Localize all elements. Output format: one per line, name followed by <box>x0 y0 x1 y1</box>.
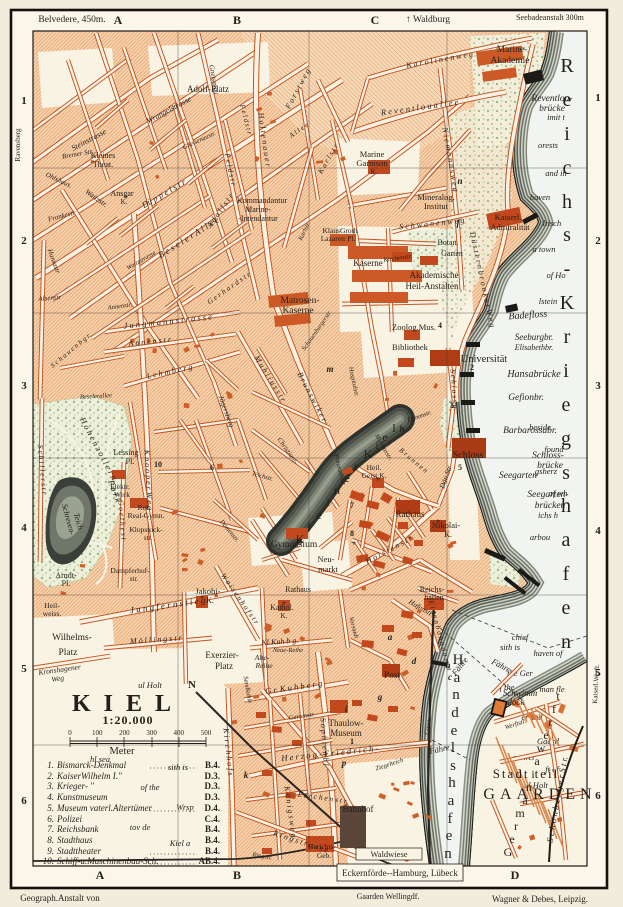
svg-text:Seegarten: Seegarten <box>499 471 537 481</box>
svg-text:Wilhelms-: Wilhelms- <box>52 633 92 643</box>
svg-text:c: c <box>448 672 452 682</box>
svg-text:sith is: sith is <box>168 762 189 772</box>
svg-text:Universität: Universität <box>461 354 508 365</box>
svg-text:man fle: man fle <box>539 684 564 694</box>
svg-text:7.: 7. <box>47 824 54 834</box>
svg-text:Kunstmuseum: Kunstmuseum <box>56 792 108 802</box>
svg-text:7: 7 <box>350 501 354 510</box>
svg-text:-: - <box>564 258 571 280</box>
svg-text:+: + <box>376 475 381 484</box>
svg-text:Gymnasium: Gymnasium <box>271 540 318 550</box>
svg-text:K.: K. <box>280 611 287 620</box>
svg-text:+: + <box>352 539 357 548</box>
svg-text:Pl.: Pl. <box>126 457 135 466</box>
svg-text:arbou: arbou <box>530 532 550 542</box>
svg-text:Institut: Institut <box>424 201 449 211</box>
svg-text:D.4.: D.4. <box>205 803 221 813</box>
svg-text:10.: 10. <box>43 856 54 866</box>
svg-text:Seeburgbr.: Seeburgbr. <box>515 332 553 342</box>
svg-text:B.4.: B.4. <box>205 824 220 834</box>
svg-text:r: r <box>354 459 358 473</box>
svg-text:str.: str. <box>144 534 153 542</box>
svg-text:Stadt teil: Stadt teil <box>493 766 560 781</box>
svg-text:200: 200 <box>119 729 130 737</box>
svg-text:Platz: Platz <box>215 661 233 671</box>
svg-text:-Intendantur: -Intendantur <box>238 214 278 223</box>
svg-text:G: G <box>504 845 513 859</box>
svg-text:d: d <box>451 705 459 721</box>
svg-text:e: e <box>451 723 458 739</box>
svg-text:1: 1 <box>21 95 27 107</box>
svg-text:AB.4.: AB.4. <box>198 856 220 866</box>
svg-text:r: r <box>548 715 552 729</box>
svg-text:i: i <box>563 360 569 382</box>
svg-text:Rathaus: Rathaus <box>396 509 425 519</box>
svg-text:f: f <box>552 702 556 716</box>
svg-text:Geograph.Anstalt von: Geograph.Anstalt von <box>20 893 100 903</box>
svg-text:n: n <box>444 846 452 862</box>
svg-text:3: 3 <box>595 380 601 392</box>
svg-text:K.: K. <box>444 530 452 539</box>
svg-text:Barbarossabr.: Barbarossabr. <box>503 426 557 436</box>
svg-text:Heil-Anstalten: Heil-Anstalten <box>406 281 459 291</box>
svg-text:6: 6 <box>595 790 601 802</box>
svg-text:R: R <box>560 55 574 77</box>
svg-text:haven of: haven of <box>533 648 564 658</box>
svg-text:+: + <box>282 599 287 608</box>
svg-text:p: p <box>341 758 347 768</box>
svg-text:B: B <box>233 13 241 27</box>
svg-text:Lessing: Lessing <box>114 448 139 457</box>
svg-text:Wrsp: Wrsp <box>176 802 193 812</box>
svg-text:markt: markt <box>318 564 338 574</box>
svg-text:4: 4 <box>438 321 442 330</box>
svg-text:w: w <box>537 741 546 755</box>
svg-text:100: 100 <box>92 729 103 737</box>
svg-text:3: 3 <box>21 380 27 392</box>
svg-text:Klopstock-: Klopstock- <box>129 525 163 534</box>
svg-text:Bibliothek: Bibliothek <box>392 342 429 352</box>
svg-text:Reihe: Reihe <box>254 661 273 670</box>
svg-text:of the: of the <box>140 782 159 792</box>
svg-text:4: 4 <box>21 522 27 534</box>
svg-text:e: e <box>446 828 453 844</box>
svg-text:Polizei: Polizei <box>56 814 82 824</box>
svg-text:C.4.: C.4. <box>205 814 221 824</box>
svg-text:orests: orests <box>538 140 559 150</box>
svg-text:f: f <box>563 563 570 585</box>
svg-text:n: n <box>561 631 571 653</box>
svg-text:Kaserne: Kaserne <box>282 306 313 316</box>
svg-text:sith is: sith is <box>500 642 521 652</box>
svg-text:Seegarten-: Seegarten- <box>527 490 568 500</box>
svg-text:Hansabrücke: Hansabrücke <box>506 369 561 380</box>
svg-text:Real-Gymn.: Real-Gymn. <box>128 511 165 520</box>
svg-text:e: e <box>562 394 571 416</box>
svg-text:D.3.: D.3. <box>205 792 221 802</box>
svg-text:Kleines: Kleines <box>91 151 115 160</box>
svg-text:tov de: tov de <box>130 822 151 832</box>
svg-text:Lazarett Pl.: Lazarett Pl. <box>321 234 356 243</box>
svg-text:e: e <box>509 832 514 846</box>
svg-text:Bahnhof: Bahnhof <box>343 804 374 814</box>
svg-text:a: a <box>448 793 455 809</box>
svg-text:e: e <box>562 597 571 619</box>
svg-text:Museum: Museum <box>330 728 362 738</box>
svg-text:300: 300 <box>146 729 157 737</box>
svg-text:Rathaus: Rathaus <box>285 585 311 594</box>
svg-text:g: g <box>561 428 571 450</box>
svg-text:Stadttheater: Stadttheater <box>57 846 101 856</box>
svg-text:a town: a town <box>533 244 556 254</box>
svg-text:Meter: Meter <box>109 746 135 757</box>
svg-text:m: m <box>326 364 333 374</box>
svg-text:e: e <box>543 728 548 742</box>
svg-text:h: h <box>448 775 456 791</box>
svg-text:d: d <box>412 656 417 666</box>
svg-text:B.4.: B.4. <box>205 846 220 856</box>
svg-text:0: 0 <box>68 729 72 737</box>
svg-text:s: s <box>450 758 456 774</box>
svg-text:c: c <box>563 157 572 179</box>
svg-text:f: f <box>448 811 453 827</box>
svg-text:6: 6 <box>210 463 214 472</box>
svg-text:5.: 5. <box>47 803 54 813</box>
svg-text:Akademie: Akademie <box>490 56 529 66</box>
svg-text:2.: 2. <box>47 771 54 781</box>
svg-text:n: n <box>452 687 460 703</box>
svg-text:Zoolog.Mus.: Zoolog.Mus. <box>392 322 436 332</box>
svg-text:Museum vaterl.Altertümer: Museum vaterl.Altertümer <box>56 803 152 813</box>
svg-text:m: m <box>515 806 525 820</box>
svg-text:Belvedere, 450m.: Belvedere, 450m. <box>38 15 105 25</box>
svg-text:Seebadeanstalt 300m: Seebadeanstalt 300m <box>516 13 585 22</box>
svg-text:1:20.000: 1:20.000 <box>103 713 154 727</box>
svg-text:h: h <box>562 191 572 213</box>
svg-text:Ravensberg: Ravensberg <box>14 128 22 161</box>
svg-text:a: a <box>388 632 393 642</box>
svg-text:+: + <box>436 517 441 526</box>
svg-text:Schloss: Schloss <box>453 450 484 461</box>
svg-text:2: 2 <box>595 235 601 247</box>
svg-text:C: C <box>371 13 380 27</box>
svg-text:Schiff-u.Maschinenbau-Sch.: Schiff-u.Maschinenbau-Sch. <box>57 856 158 866</box>
svg-text:9.: 9. <box>47 846 54 856</box>
svg-text:+: + <box>124 193 129 202</box>
svg-text:10: 10 <box>154 460 162 469</box>
svg-text:s: s <box>563 224 571 246</box>
svg-text:Botan.: Botan. <box>437 238 458 247</box>
svg-text:r: r <box>514 819 518 833</box>
svg-text:brücke: brücke <box>539 104 565 114</box>
svg-text:Schloss-: Schloss- <box>532 451 564 461</box>
svg-text:Garten: Garten <box>441 249 463 258</box>
svg-text:Pl.: Pl. <box>62 579 71 588</box>
svg-text:g: g <box>377 692 383 702</box>
svg-text:Weg: Weg <box>51 673 65 684</box>
svg-text:Geist K.: Geist K. <box>362 471 387 480</box>
svg-text:brücken: brücken <box>535 501 566 511</box>
svg-text:r: r <box>564 326 571 348</box>
svg-text:GAARDEN: GAARDEN <box>483 786 596 803</box>
svg-text:str.: str. <box>130 575 139 583</box>
svg-text:Neue-Reihe: Neue-Reihe <box>272 647 303 654</box>
svg-text:e: e <box>432 608 436 618</box>
svg-text:Kaiserl.: Kaiserl. <box>495 212 522 222</box>
svg-text:Gerichts-: Gerichts- <box>308 842 336 851</box>
svg-text:9: 9 <box>298 538 302 547</box>
svg-text:Waldwiese: Waldwiese <box>370 849 407 859</box>
svg-text:Gefionbr.: Gefionbr. <box>508 392 544 403</box>
svg-text:1: 1 <box>595 92 601 104</box>
svg-text:n: n <box>334 483 340 497</box>
svg-text:weiss.: weiss. <box>43 609 62 618</box>
svg-text:KaiserWilhelm I.": KaiserWilhelm I." <box>56 771 122 781</box>
svg-text:1.: 1. <box>47 760 54 770</box>
svg-text:1: 1 <box>350 737 354 746</box>
svg-text:Bismarck-Denkmal: Bismarck-Denkmal <box>57 760 127 770</box>
svg-text:Post: Post <box>384 671 401 681</box>
svg-text:Geb.: Geb. <box>317 851 331 860</box>
svg-text:Ansgar: Ansgar <box>110 189 133 198</box>
svg-text:A: A <box>96 868 105 882</box>
svg-text:b: b <box>446 660 451 670</box>
svg-text:ul Holt: ul Holt <box>138 680 162 690</box>
svg-text:4.: 4. <box>47 792 54 802</box>
svg-text:Krieger- ": Krieger- " <box>56 781 94 791</box>
svg-text:K.: K. <box>206 596 214 605</box>
svg-text:Adolf-Platz: Adolf-Platz <box>187 84 229 94</box>
svg-text:+: + <box>200 593 205 602</box>
svg-text:B.4.: B.4. <box>205 760 220 770</box>
svg-text:brücke: brücke <box>537 461 563 471</box>
svg-text:A: A <box>114 13 123 27</box>
svg-text:Akademische: Akademische <box>410 270 459 280</box>
svg-text:Gaarden Wellingdf.: Gaarden Wellingdf. <box>357 892 420 901</box>
svg-text:D.3.: D.3. <box>205 781 221 791</box>
svg-text:Elisabethbr.: Elisabethbr. <box>514 343 553 352</box>
svg-text:ichs h: ichs h <box>538 510 558 520</box>
svg-text:K: K <box>364 447 373 461</box>
svg-text:6.: 6. <box>47 814 54 824</box>
svg-text:2: 2 <box>21 235 27 247</box>
svg-text:l: l <box>451 740 455 756</box>
svg-text:Kommandantur: Kommandantur <box>237 196 288 205</box>
svg-text:lstein: lstein <box>539 296 557 306</box>
svg-text:8.: 8. <box>47 835 54 845</box>
svg-text:Dampferhof-: Dampferhof- <box>110 566 150 575</box>
svg-text:k: k <box>244 770 249 780</box>
svg-text:B: B <box>233 868 241 882</box>
svg-text:n: n <box>457 176 462 186</box>
svg-text:Reichsbank: Reichsbank <box>56 824 99 834</box>
svg-text:ltisch: ltisch <box>543 218 561 228</box>
svg-text:Theat.: Theat. <box>93 160 113 169</box>
svg-text:a: a <box>562 529 571 551</box>
svg-text:B.4.: B.4. <box>205 835 220 845</box>
svg-text:i: i <box>564 123 570 145</box>
svg-text:6: 6 <box>21 795 27 807</box>
svg-text:e: e <box>316 508 321 522</box>
svg-text:3: 3 <box>450 401 454 410</box>
svg-text:Matrosen-: Matrosen- <box>280 296 319 306</box>
svg-text:Garnison: Garnison <box>356 158 388 168</box>
svg-text:Kiel a: Kiel a <box>169 838 191 848</box>
svg-text:K: K <box>560 292 575 314</box>
svg-text:Thaulow-: Thaulow- <box>329 718 364 728</box>
svg-text:Admiralität: Admiralität <box>490 222 530 232</box>
svg-text:Stadthaus: Stadthaus <box>57 835 93 845</box>
svg-text:D.3.: D.3. <box>205 771 221 781</box>
svg-text:h: h <box>399 424 404 434</box>
svg-text:3.: 3. <box>46 781 54 791</box>
svg-text:↑ Waldburg: ↑ Waldburg <box>406 15 450 25</box>
svg-text:Kaserne: Kaserne <box>353 258 382 268</box>
svg-text:500: 500 <box>201 729 212 737</box>
svg-text:Marine-: Marine- <box>245 205 271 214</box>
svg-text:Reventlou-: Reventlou- <box>530 94 572 104</box>
svg-text:5: 5 <box>458 463 462 472</box>
svg-text:2: 2 <box>470 363 474 372</box>
svg-text:400: 400 <box>174 729 185 737</box>
svg-text:s: s <box>562 462 570 484</box>
svg-text:4: 4 <box>595 525 601 537</box>
svg-text:Exerzier-: Exerzier- <box>205 650 238 660</box>
svg-text:5: 5 <box>21 663 27 675</box>
svg-text:Marine-: Marine- <box>497 45 528 55</box>
svg-text:D: D <box>511 868 520 882</box>
svg-text:haven: haven <box>530 192 550 202</box>
svg-text:Platz: Platz <box>59 648 78 658</box>
svg-text:N: N <box>188 679 196 691</box>
svg-text:8: 8 <box>350 529 354 538</box>
svg-text:Neu-: Neu- <box>318 554 335 564</box>
svg-text:Eckernförde--Hamburg, Lübeck: Eckernförde--Hamburg, Lübeck <box>342 868 458 878</box>
svg-text:dock: dock <box>508 697 526 707</box>
svg-text:K.: K. <box>371 168 378 176</box>
svg-text:Wagner & Debes, Leipzig.: Wagner & Debes, Leipzig. <box>492 894 588 904</box>
